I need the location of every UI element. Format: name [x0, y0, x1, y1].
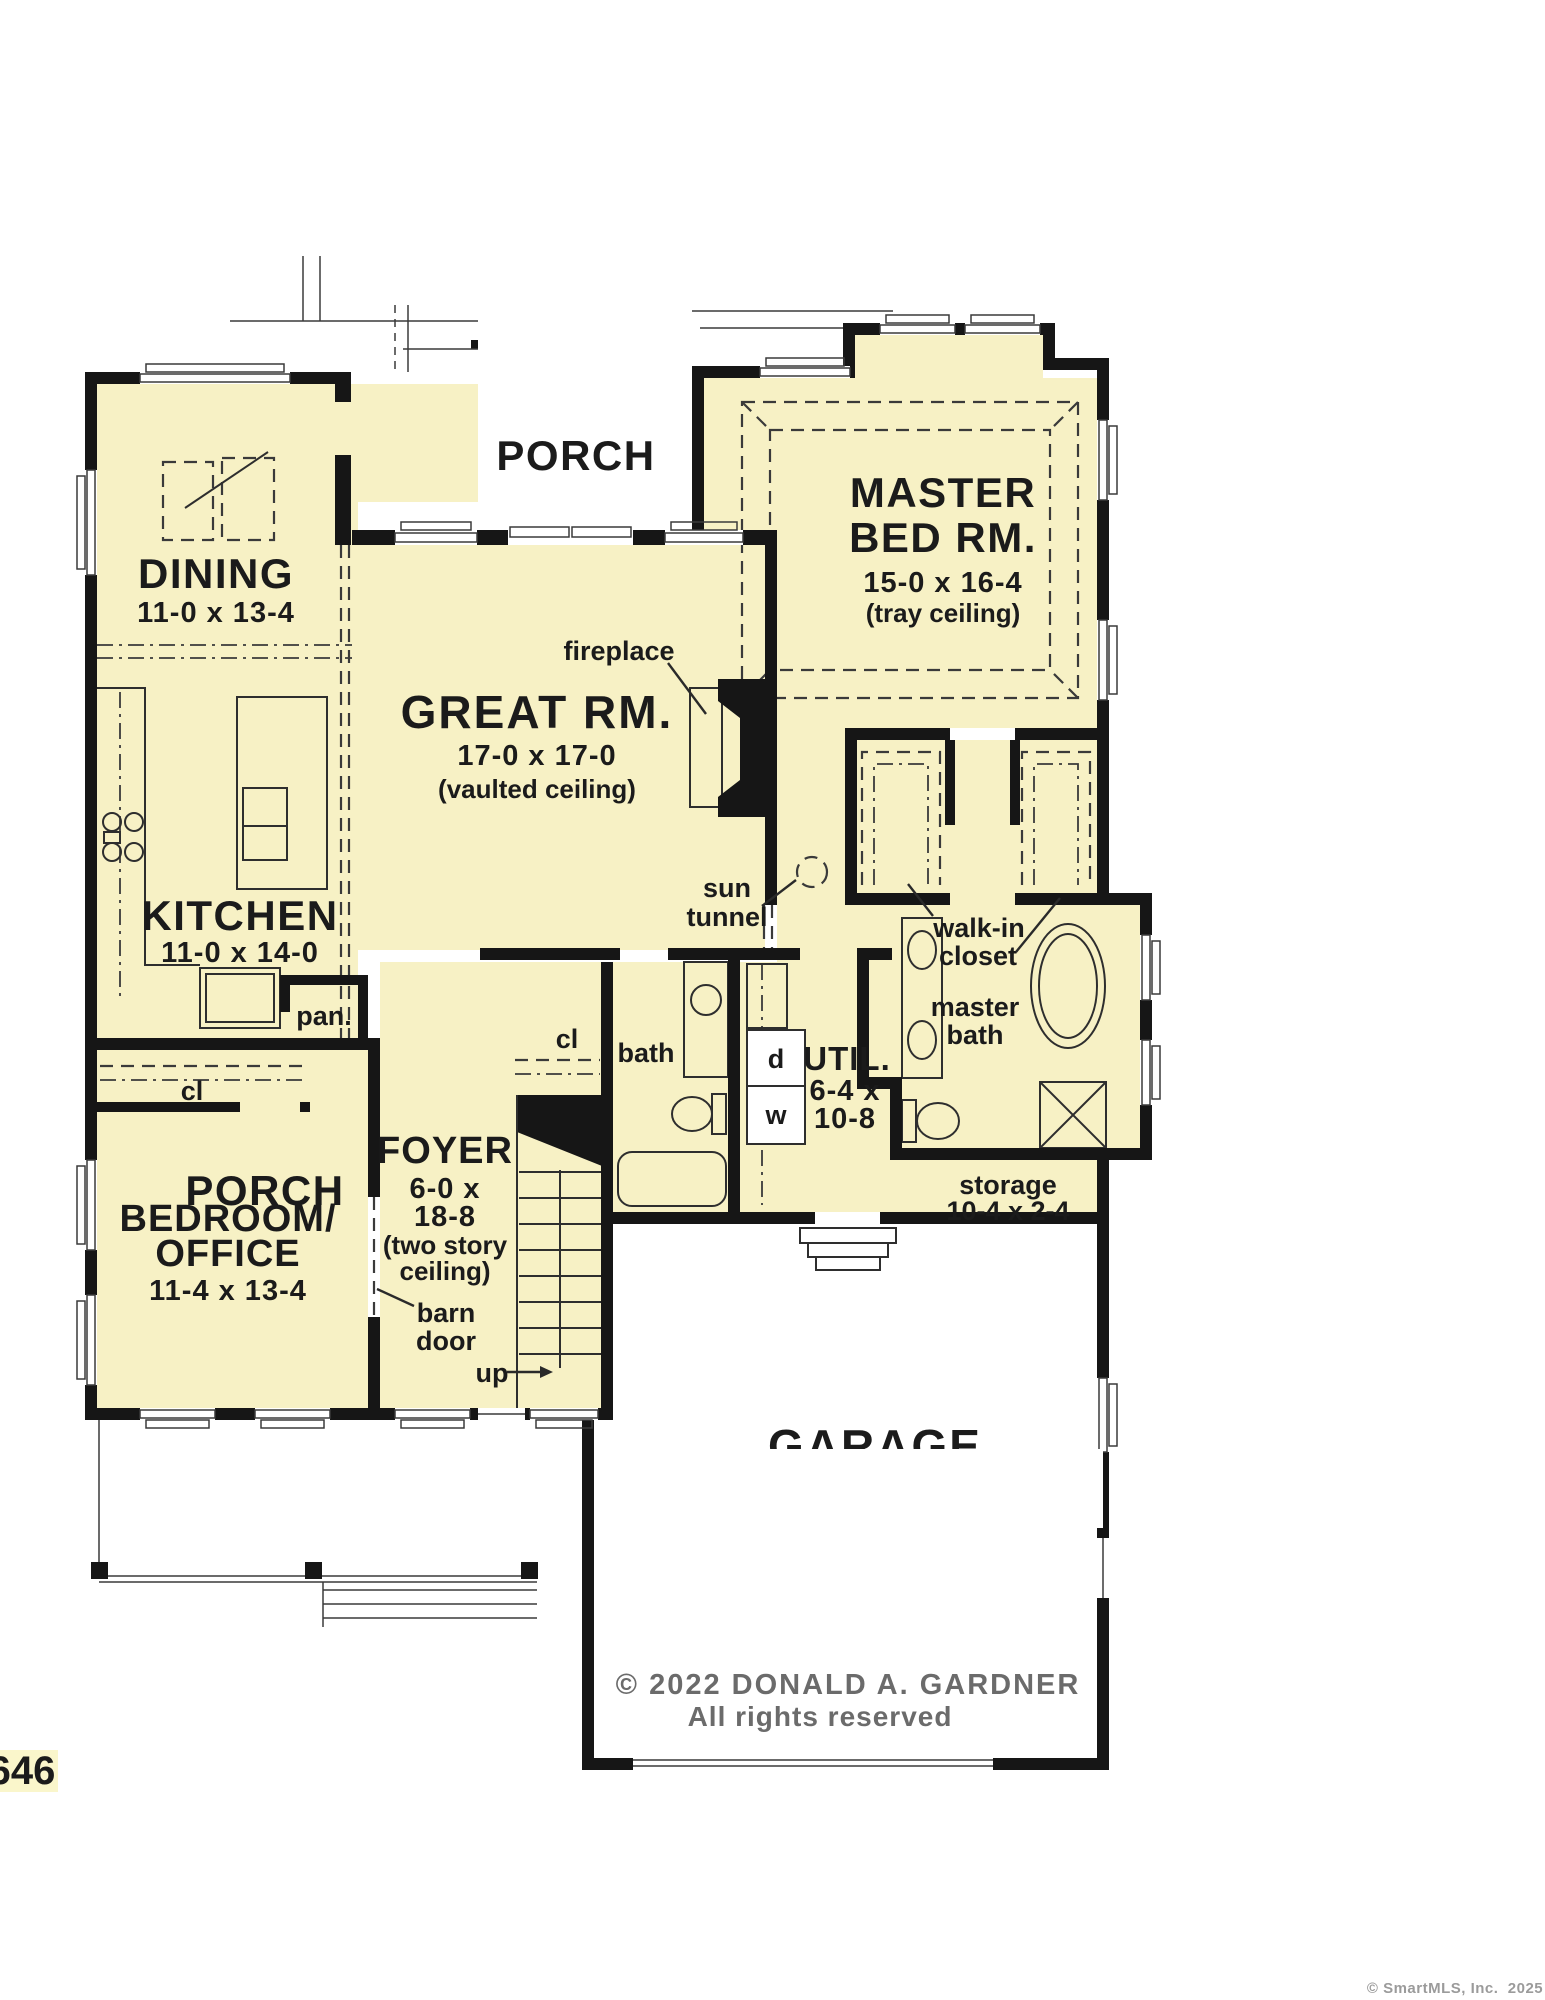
window: [140, 1408, 215, 1428]
porch-steps: [323, 1582, 537, 1627]
foyer-closet-label: cl: [556, 1024, 579, 1054]
porch-bottom-outline: [91, 1420, 538, 1627]
bedroom-office-dims: 11-4 x 13-4: [149, 1275, 307, 1307]
foyer-label: FOYER: [377, 1130, 513, 1172]
porch-top-label: PORCH: [496, 432, 655, 479]
bedroom-office-label-2: OFFICE: [155, 1233, 300, 1275]
window: [140, 364, 290, 384]
window: [1097, 620, 1117, 700]
utility-label: UTIL.: [803, 1040, 890, 1077]
kitchen-dims: 11-0 x 14-0: [161, 937, 319, 969]
great-room-dims: 17-0 x 17-0: [457, 740, 616, 772]
foyer-dims-2: 18-8: [414, 1201, 476, 1233]
window: [255, 1408, 330, 1428]
dining-dims: 11-0 x 13-4: [137, 597, 295, 629]
porch-post: [521, 1562, 538, 1579]
sun-tunnel-label-1: sun: [703, 873, 751, 903]
bedroom-closet-label: cl: [181, 1076, 204, 1106]
pantry-label: pan.: [296, 1001, 352, 1031]
barn-door-label-2: door: [416, 1326, 476, 1356]
dining-label: DINING: [138, 550, 294, 597]
barn-door-label-1: barn: [417, 1298, 476, 1328]
bath-label: bath: [618, 1038, 675, 1068]
master-bath-label-2: bath: [947, 1020, 1004, 1050]
window: [880, 315, 955, 335]
porch-double-door: [508, 527, 633, 545]
storage-dims: 10-4 x 2-4: [946, 1196, 1069, 1226]
window: [760, 358, 850, 378]
utility-dims-2: 10-8: [814, 1103, 876, 1135]
window: [1097, 1378, 1117, 1452]
copyright-line-2: All rights reserved: [688, 1701, 953, 1732]
sun-tunnel-label-2: tunnel: [687, 902, 768, 932]
washer-label: w: [764, 1100, 787, 1130]
master-bedroom-dims: 15-0 x 16-4: [863, 567, 1022, 599]
window: [77, 1295, 97, 1385]
up-label: up: [476, 1358, 509, 1388]
window: [77, 470, 97, 575]
porch-post: [91, 1562, 108, 1579]
garage-stoop: [800, 1228, 896, 1270]
fireplace-label: fireplace: [563, 636, 674, 666]
floor-plan-drawing: GARAGE PORCH MASTER BED RM. 15-0 x 16-4 …: [0, 0, 1545, 2000]
porch-bottom-label: PORCH: [185, 1167, 344, 1214]
window: [395, 1408, 470, 1428]
master-bedroom-note: (tray ceiling): [866, 598, 1021, 628]
foyer-note-2: ceiling): [399, 1256, 490, 1286]
walk-in-closet-label-2: closet: [939, 941, 1017, 971]
overlay-garage: [737, 1449, 1103, 1528]
master-bedroom-label-1: MASTER: [850, 469, 1036, 516]
floor-plan-page: GARAGE PORCH MASTER BED RM. 15-0 x 16-4 …: [0, 0, 1545, 2000]
porch-post: [305, 1562, 322, 1579]
window: [395, 522, 477, 545]
window: [1140, 935, 1160, 1000]
window: [965, 315, 1040, 335]
copyright-line-1: © 2022 DONALD A. GARDNER: [616, 1669, 1081, 1701]
master-bedroom-label-2: BED RM.: [849, 514, 1037, 561]
plan-number: 646: [0, 1749, 55, 1793]
kitchen-label: KITCHEN: [141, 892, 338, 939]
window: [1140, 1040, 1160, 1105]
window: [77, 1160, 97, 1250]
front-door: [478, 1408, 525, 1420]
master-bath-label-1: master: [931, 992, 1020, 1022]
dryer-label: d: [768, 1044, 785, 1074]
plan-number-chip: 646: [0, 1749, 58, 1793]
great-room-label: GREAT RM.: [401, 686, 674, 738]
great-room-note: (vaulted ceiling): [438, 774, 636, 804]
window: [1097, 420, 1117, 500]
garage-door: [633, 1760, 993, 1766]
watermark: © SmartMLS, Inc. 2025: [1367, 1980, 1543, 1997]
walk-in-closet-label-1: walk-in: [932, 913, 1025, 943]
